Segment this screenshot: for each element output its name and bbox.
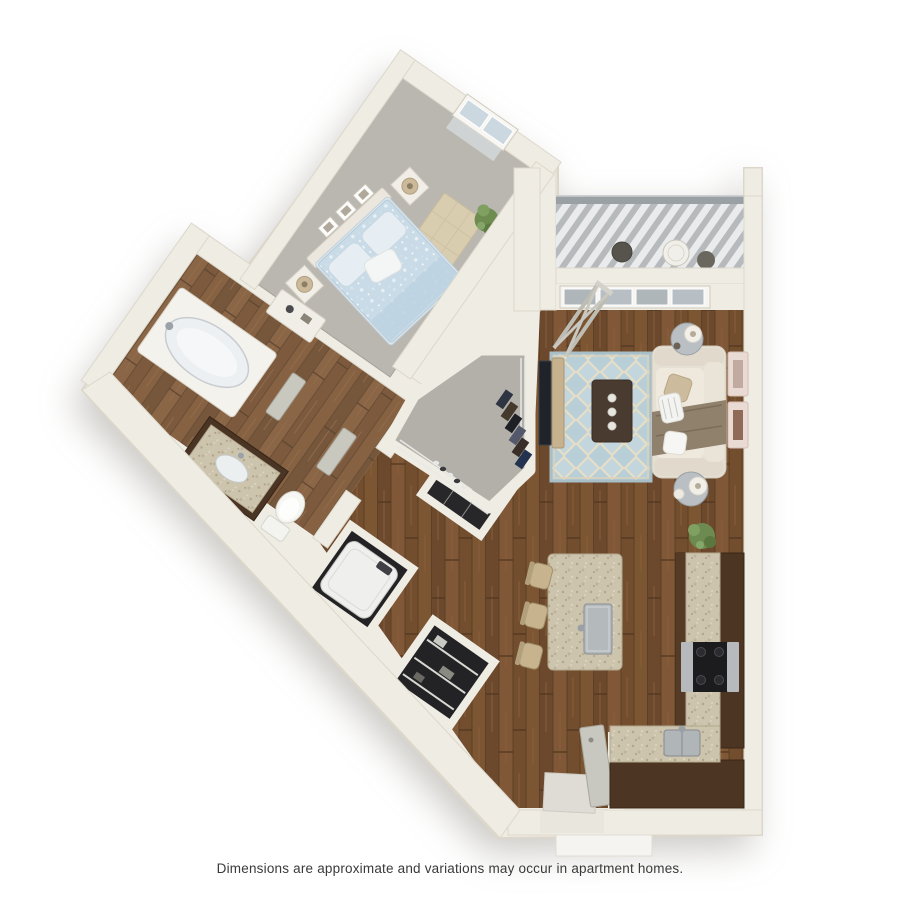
decor-orb [674,489,684,499]
disclaimer-text: Dimensions are approximate and variation… [0,861,900,876]
sink-faucet-icon [679,726,686,733]
decor-item [674,343,681,350]
balcony-railing [556,196,744,204]
lamp-finial [695,483,701,489]
lamp-finial [690,331,696,337]
sink-faucet-icon [578,625,585,632]
corner-sink [664,726,700,757]
island-sink [584,604,612,654]
coffee-table [592,380,632,442]
door-knob-icon [589,738,594,743]
side-table-bottom [674,472,708,506]
balcony-knee-wall [556,268,744,284]
kitchen-island [548,554,622,670]
sofa [652,346,726,478]
kitchen-counter-right [676,553,744,748]
balcony-chair [697,251,715,269]
pillow [663,431,688,456]
balcony [538,163,744,310]
right-wall-top [744,168,762,196]
right-wall [744,196,762,835]
balcony-deck [556,204,744,268]
tv [539,361,551,445]
bistro-table [663,240,689,266]
range-cooktop [681,642,739,692]
side-table-top [671,323,703,355]
tv-stand [552,358,564,448]
living-bedroom-wall [514,168,540,311]
balcony-chair [612,242,632,262]
floor-plan-image [0,0,900,900]
floor-plan-page: Dimensions are approximate and variation… [0,0,900,900]
entry-stoop [556,835,652,856]
